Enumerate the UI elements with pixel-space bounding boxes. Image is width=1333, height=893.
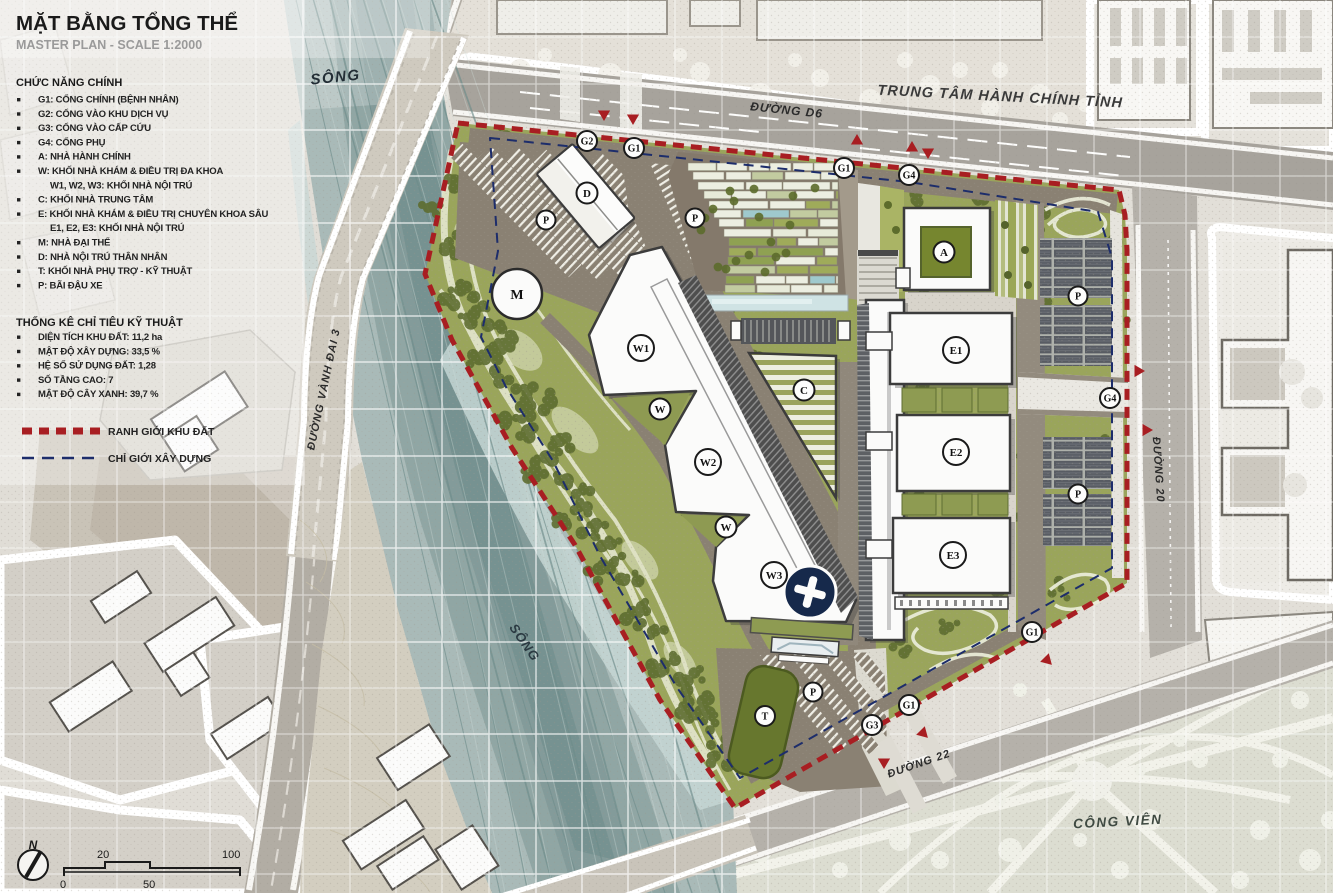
svg-text:A: NHÀ HÀNH CHÍNH: A: NHÀ HÀNH CHÍNH [38, 152, 131, 163]
svg-text:G1: G1 [903, 701, 916, 712]
svg-text:C: KHỐI NHÀ TRUNG TÂM: C: KHỐI NHÀ TRUNG TÂM [38, 194, 153, 206]
svg-text:G1: CỔNG CHÍNH (BỆNH NHÂN): G1: CỔNG CHÍNH (BỆNH NHÂN) [38, 94, 179, 106]
svg-text:100: 100 [222, 849, 240, 861]
svg-text:A: A [940, 247, 948, 259]
svg-text:G1: G1 [628, 144, 641, 155]
svg-text:G1: G1 [1026, 628, 1039, 639]
svg-text:G2: G2 [581, 137, 594, 148]
svg-text:E: KHỐI NHÀ KHÁM & ĐIỀU TRỊ CH: E: KHỐI NHÀ KHÁM & ĐIỀU TRỊ CHUYÊN KHOA … [38, 208, 268, 220]
svg-text:MẬT ĐỘ XÂY DỰNG: 33,5 %: MẬT ĐỘ XÂY DỰNG: 33,5 % [38, 345, 161, 357]
svg-text:N: N [29, 838, 38, 852]
svg-text:W: W [721, 522, 732, 534]
svg-text:W3: W3 [766, 570, 783, 582]
svg-text:E2: E2 [950, 447, 963, 459]
svg-text:DIỆN TÍCH KHU ĐẤT: 11,2 ha: DIỆN TÍCH KHU ĐẤT: 11,2 ha [38, 331, 163, 343]
svg-text:0: 0 [60, 879, 66, 891]
svg-text:W1, W2, W3: KHỐI NHÀ NỘI TRÚ: W1, W2, W3: KHỐI NHÀ NỘI TRÚ [50, 179, 193, 191]
svg-text:E1: E1 [950, 345, 963, 357]
svg-text:M: M [510, 288, 523, 303]
svg-text:50: 50 [143, 879, 155, 891]
svg-text:RANH GIỚI KHU ĐẤT: RANH GIỚI KHU ĐẤT [108, 425, 215, 438]
svg-text:T: T [762, 712, 769, 723]
svg-text:G3: G3 [866, 721, 879, 732]
svg-text:CHỨC NĂNG CHÍNH: CHỨC NĂNG CHÍNH [16, 76, 122, 89]
svg-text:W2: W2 [700, 457, 717, 469]
svg-text:G4: CỔNG PHỤ: G4: CỔNG PHỤ [38, 136, 106, 148]
svg-text:W: KHỐI NHÀ KHÁM & ĐIỀU TRỊ ĐA: W: KHỐI NHÀ KHÁM & ĐIỀU TRỊ ĐA KHOA [38, 165, 223, 177]
svg-text:P: P [543, 216, 549, 227]
svg-text:MẶT BẰNG TỔNG THỂ: MẶT BẰNG TỔNG THỂ [16, 11, 238, 35]
svg-text:P: P [1075, 292, 1081, 303]
svg-text:MASTER PLAN - SCALE 1:2000: MASTER PLAN - SCALE 1:2000 [16, 38, 202, 52]
svg-text:C: C [800, 385, 808, 397]
svg-text:M: NHÀ ĐẠI THỂ: M: NHÀ ĐẠI THỂ [38, 237, 110, 249]
svg-text:MẬT ĐỘ CÂY XANH: 39,7 %: MẬT ĐỘ CÂY XANH: 39,7 % [38, 388, 159, 400]
svg-text:G2: CỔNG VÀO KHU DỊCH VỤ: G2: CỔNG VÀO KHU DỊCH VỤ [38, 108, 169, 120]
svg-text:20: 20 [97, 849, 109, 861]
svg-text:G4: G4 [903, 171, 916, 182]
svg-text:E1, E2, E3: KHỐI NHÀ NỘI TRÚ: E1, E2, E3: KHỐI NHÀ NỘI TRÚ [50, 222, 185, 234]
svg-text:SỐ TẦNG CAO: 7: SỐ TẦNG CAO: 7 [38, 374, 113, 386]
svg-text:CHỈ GIỚI XÂY DỰNG: CHỈ GIỚI XÂY DỰNG [108, 452, 211, 465]
svg-text:THỐNG KÊ CHỈ TIÊU KỸ THUẬT: THỐNG KÊ CHỈ TIÊU KỸ THUẬT [16, 315, 183, 329]
svg-text:D: NHÀ NỘI TRÚ THÂN NHÂN: D: NHÀ NỘI TRÚ THÂN NHÂN [38, 251, 168, 263]
svg-text:W: W [655, 404, 666, 416]
svg-text:G1: G1 [838, 164, 851, 175]
svg-text:T: KHỐI NHÀ PHỤ TRỢ - KỸ THUẬT: T: KHỐI NHÀ PHỤ TRỢ - KỸ THUẬT [38, 265, 192, 277]
svg-text:E3: E3 [947, 550, 960, 562]
svg-text:G4: G4 [1104, 394, 1117, 405]
svg-text:G3: CỔNG VÀO CẤP CỨU: G3: CỔNG VÀO CẤP CỨU [38, 122, 151, 134]
svg-text:P: BÃI ĐẬU XE: P: BÃI ĐẬU XE [38, 279, 102, 291]
svg-text:P: P [692, 214, 698, 225]
svg-text:P: P [810, 688, 816, 699]
svg-text:D: D [583, 188, 591, 200]
svg-text:HỆ SỐ SỬ DỤNG ĐẤT: 1,28: HỆ SỐ SỬ DỤNG ĐẤT: 1,28 [38, 360, 156, 372]
svg-text:P: P [1075, 490, 1081, 501]
svg-text:W1: W1 [633, 343, 650, 355]
